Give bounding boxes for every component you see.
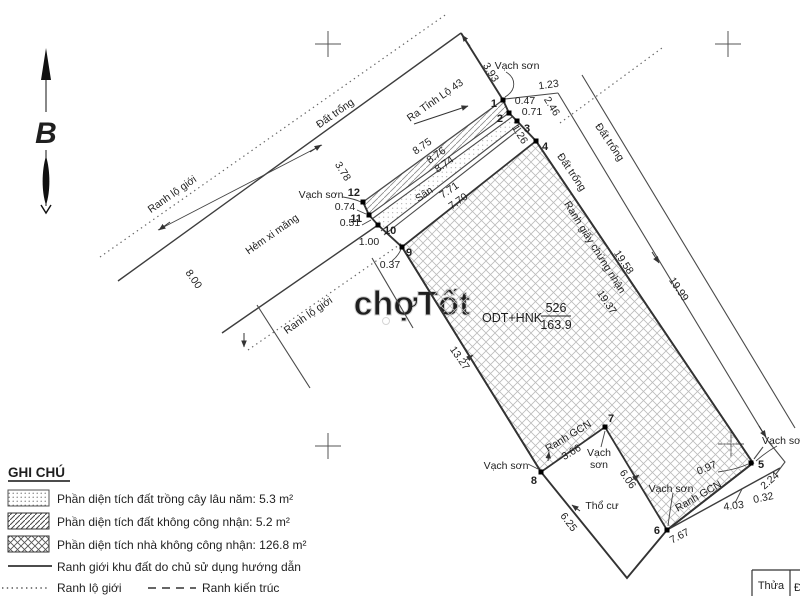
- legend-swatch-dots: [8, 490, 49, 506]
- point-label-8: 8: [531, 475, 537, 487]
- legend-item-ranh-kien-truc: Ranh kiến trúc: [202, 581, 279, 595]
- label-vach-son-p7-line2: sơn: [590, 459, 608, 471]
- legend-item-nha-khong-cong-nhan: Phần diện tích nhà không công nhận: 126.…: [57, 538, 307, 552]
- legend-title: GHI CHÚ: [8, 465, 65, 480]
- point-label-1: 1: [491, 98, 497, 110]
- point-marker-1: [501, 98, 506, 103]
- point-marker-4: [534, 139, 539, 144]
- survey-drawing: chợTốt B: [0, 0, 800, 596]
- label-tho-cu: Thổ cư: [585, 500, 618, 512]
- point-label-2: 2: [497, 113, 503, 125]
- point-label-9: 9: [406, 247, 412, 259]
- legend-swatch-crosshatch: [8, 536, 49, 552]
- dim-0-37: 0.37: [380, 259, 401, 271]
- dim-4-03: 4.03: [723, 499, 745, 513]
- point-label-12: 12: [348, 187, 360, 199]
- survey-sketch-page: chợTốt B: [0, 0, 800, 596]
- parcel-land-use-code: ODT+HNK: [482, 311, 543, 325]
- point-marker-7: [603, 425, 608, 430]
- legend-swatch-diagonal: [8, 513, 49, 529]
- label-vach-son-p6: Vạch sơn: [649, 483, 694, 495]
- legend-item-ranh-gioi: Ranh giới khu đất do chủ sử dụng hướng d…: [57, 559, 301, 574]
- point-marker-5: [749, 461, 754, 466]
- north-letter: B: [35, 117, 57, 150]
- parcel-plot-number: 526: [546, 301, 567, 315]
- label-vach-son-p8: Vạch sơn: [484, 460, 529, 472]
- dim-0-74: 0.74: [335, 201, 356, 213]
- legend-item-dat-khong-cong-nhan: Phần diện tích đất không công nhận: 5.2 …: [57, 515, 290, 529]
- point-marker-8: [539, 470, 544, 475]
- point-label-10: 10: [384, 225, 396, 237]
- parcel-area: 163.9: [540, 318, 571, 332]
- point-marker-10: [376, 223, 381, 228]
- point-marker-11: [367, 213, 372, 218]
- point-label-4: 4: [542, 141, 549, 153]
- point-marker-12: [361, 200, 366, 205]
- table-header-thua: Thửa: [758, 580, 785, 592]
- label-vach-son-p7-line1: Vạch: [587, 447, 611, 459]
- point-marker-2: [507, 111, 512, 116]
- point-marker-9: [400, 245, 405, 250]
- label-vach-son-p5: Vạch sơ: [762, 435, 800, 447]
- label-vach-son-left: Vạch sơn: [299, 189, 344, 201]
- legend-item-ranh-lo-gioi: Ranh lộ giới: [57, 581, 122, 595]
- legend-item-cay-lau-nam: Phần diện tích đất trồng cây lâu năm: 5.…: [57, 492, 293, 506]
- dim-0-51: 0.51: [340, 217, 361, 229]
- table-header-partial: Đ: [794, 582, 800, 594]
- point-marker-6: [665, 528, 670, 533]
- dim-1-00: 1.00: [359, 236, 380, 248]
- label-vach-son-top: Vạch sơn: [495, 60, 540, 72]
- point-label-7: 7: [608, 413, 614, 425]
- point-label-6: 6: [654, 525, 660, 537]
- point-label-5: 5: [758, 459, 764, 471]
- dim-0-71: 0.71: [522, 106, 543, 118]
